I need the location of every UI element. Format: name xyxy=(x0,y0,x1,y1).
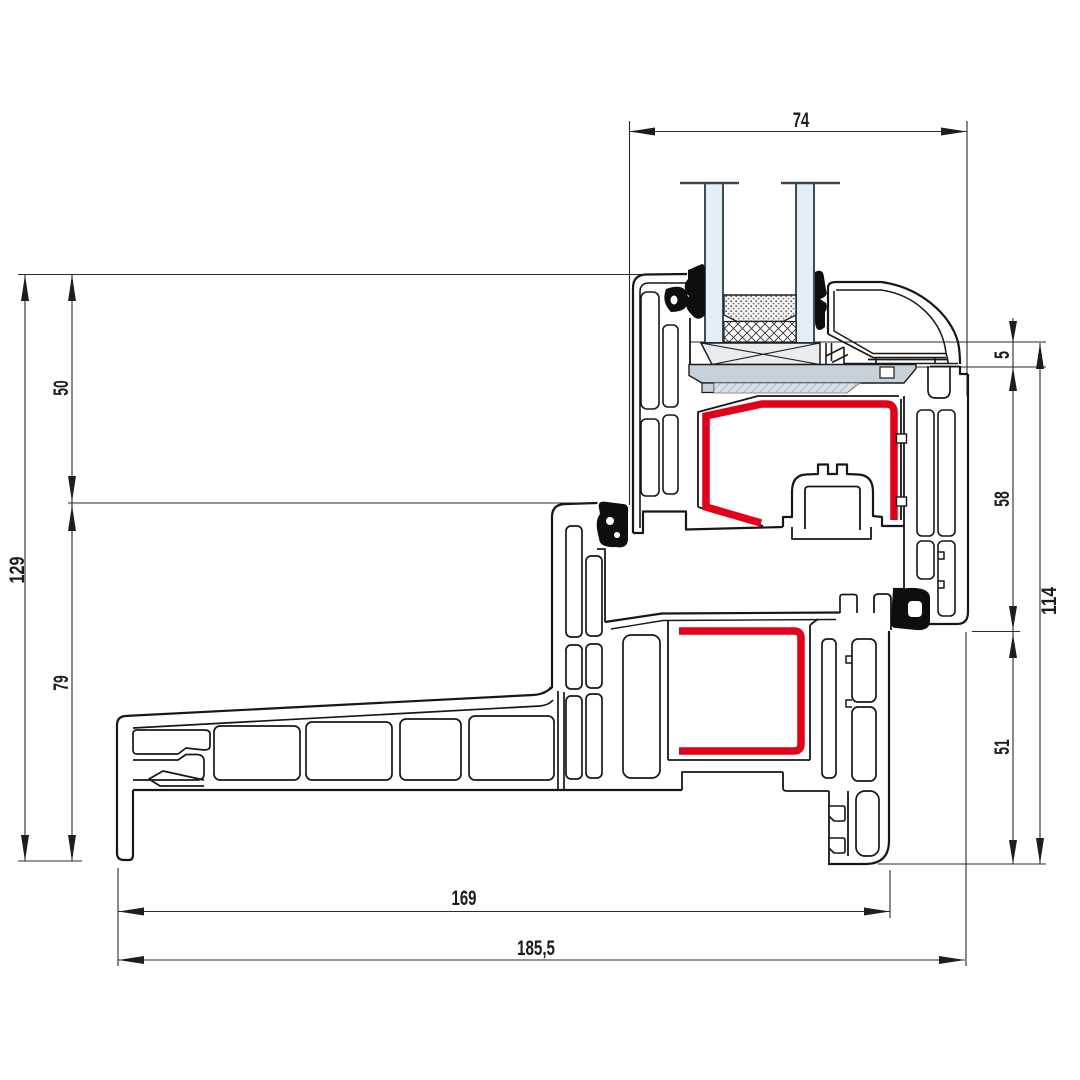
svg-text:58: 58 xyxy=(991,491,1014,507)
svg-text:51: 51 xyxy=(991,739,1014,755)
svg-text:169: 169 xyxy=(452,887,477,910)
svg-text:50: 50 xyxy=(50,380,73,396)
svg-text:114: 114 xyxy=(1038,587,1061,615)
svg-text:5: 5 xyxy=(991,351,1014,359)
svg-text:129: 129 xyxy=(6,557,29,584)
svg-text:79: 79 xyxy=(50,675,73,691)
svg-text:74: 74 xyxy=(793,109,810,132)
svg-text:185,5: 185,5 xyxy=(517,937,555,960)
